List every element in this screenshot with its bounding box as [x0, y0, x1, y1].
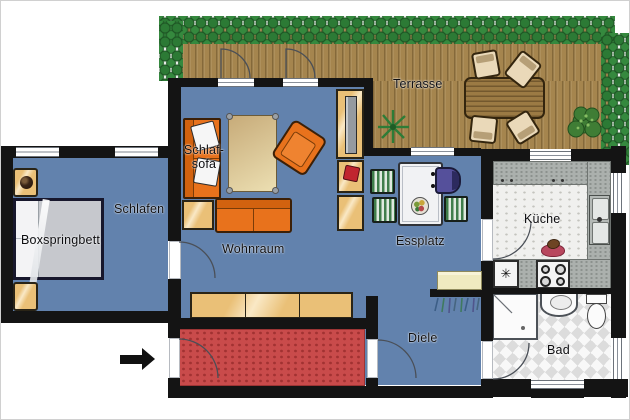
freezer: ✳ [493, 260, 519, 288]
wall-segment [481, 261, 493, 341]
sideboard-divider [245, 294, 246, 317]
bathroom-door-opening [482, 341, 493, 379]
window [530, 151, 571, 160]
tv-board [336, 89, 364, 159]
cabinet [337, 195, 364, 231]
room-label-wohnraum: Wohnraum [222, 242, 285, 256]
chair-backrest [473, 131, 493, 140]
table-fitting [431, 172, 435, 176]
fruit-bowl-icon [411, 197, 429, 215]
room-label-kueche: Küche [524, 212, 560, 226]
wall-segment [168, 279, 181, 318]
counter-knob [510, 179, 513, 182]
chair-backrest [452, 171, 459, 190]
hall-door-opening [367, 339, 378, 378]
counter-knob [552, 179, 555, 182]
burner-icon [556, 277, 565, 286]
dining-chair [444, 196, 468, 222]
kitchen-door-opening [482, 219, 493, 261]
entrance-arrow-icon [120, 355, 142, 364]
kitchen-counter [493, 161, 588, 185]
floor-plan: ✳ [0, 0, 630, 420]
wall-segment [168, 78, 218, 87]
wall-segment [611, 213, 626, 338]
room-label-essplatz: Essplatz [396, 234, 445, 248]
entrance-arrow-icon [142, 348, 155, 370]
nightstand [13, 282, 38, 311]
rug-corner [226, 113, 233, 120]
wall-segment [168, 78, 181, 241]
room-label-schlafen: Schlafen [114, 202, 164, 216]
wall-segment [168, 318, 366, 329]
sofa-seam [253, 208, 254, 231]
schlafsofa-label-line2: sofa [181, 157, 227, 171]
wall-segment [481, 379, 531, 397]
freezer-icon: ✳ [501, 266, 512, 282]
faucet-icon [597, 217, 602, 222]
wall-segment [1, 311, 181, 323]
rug-corner [272, 113, 279, 120]
wall-shelf [337, 160, 364, 193]
terrace-chair [469, 115, 499, 145]
furniture-label-schlafsofa: Schlaf- sofa [181, 143, 227, 171]
window [531, 380, 584, 389]
rug-corner [272, 187, 279, 194]
wall-segment [366, 296, 378, 339]
wall-segment [611, 146, 626, 173]
coat-rack-shelf-box [437, 271, 482, 290]
counter-knob [561, 179, 564, 182]
schlafsofa-label-line1: Schlaf- [181, 143, 227, 157]
nightstand [13, 168, 38, 197]
red-vase-icon [343, 165, 361, 183]
entry-carpet [179, 329, 365, 386]
area-rug [228, 115, 277, 192]
terrace-door-opening [218, 78, 254, 87]
wall-segment [364, 148, 411, 156]
wall-segment [584, 379, 628, 397]
wall-segment [571, 149, 613, 161]
wall-segment [481, 149, 493, 219]
sofa [215, 198, 292, 233]
burner-icon [540, 276, 551, 287]
wall-segment [531, 388, 584, 398]
rug-corner [226, 187, 233, 194]
terrace-door-opening [283, 78, 318, 87]
chair-backrest [475, 54, 494, 64]
sideboard-divider [299, 294, 300, 317]
toilet-bowl [587, 303, 606, 329]
wall-segment [254, 78, 283, 87]
wall-segment [364, 78, 373, 156]
wall-segment [454, 148, 481, 156]
wall-segment [168, 386, 493, 398]
room-label-diele: Diele [408, 331, 438, 345]
entrance-door-opening [169, 338, 180, 378]
window [411, 147, 454, 156]
tv-icon [345, 96, 357, 154]
window [115, 147, 158, 157]
plant-pot-icon [20, 176, 33, 189]
hedge-left [159, 21, 183, 81]
shower-drain [521, 326, 525, 330]
side-table [182, 200, 214, 230]
terrace-table [464, 77, 545, 119]
wall-segment [318, 78, 364, 87]
terrace-chair [471, 49, 501, 80]
sink-basin [550, 295, 572, 310]
wall-segment [1, 146, 13, 323]
window [613, 173, 622, 213]
furniture-label-boxspringbett: Boxspringbett [21, 233, 100, 247]
table-fitting [431, 184, 435, 188]
dining-chair [372, 197, 397, 223]
burner-icon [541, 265, 550, 274]
coat-rack-rail [430, 289, 493, 297]
sink-basin [592, 222, 609, 244]
room-label-bad: Bad [547, 343, 570, 357]
kitchen-sink [589, 195, 610, 245]
stove [536, 260, 570, 289]
shower [492, 293, 538, 340]
counter-knob [501, 179, 504, 182]
bedroom-door-opening [169, 241, 181, 279]
desk-chair [435, 167, 461, 194]
hedge-top [159, 16, 615, 44]
burner-icon [555, 264, 566, 275]
wall-segment [481, 288, 611, 294]
window [613, 338, 622, 379]
window [16, 147, 59, 157]
bathroom-sink [540, 293, 578, 317]
sideboard [190, 292, 353, 319]
room-label-terrasse: Terrasse [393, 77, 443, 91]
dining-chair [370, 169, 395, 194]
